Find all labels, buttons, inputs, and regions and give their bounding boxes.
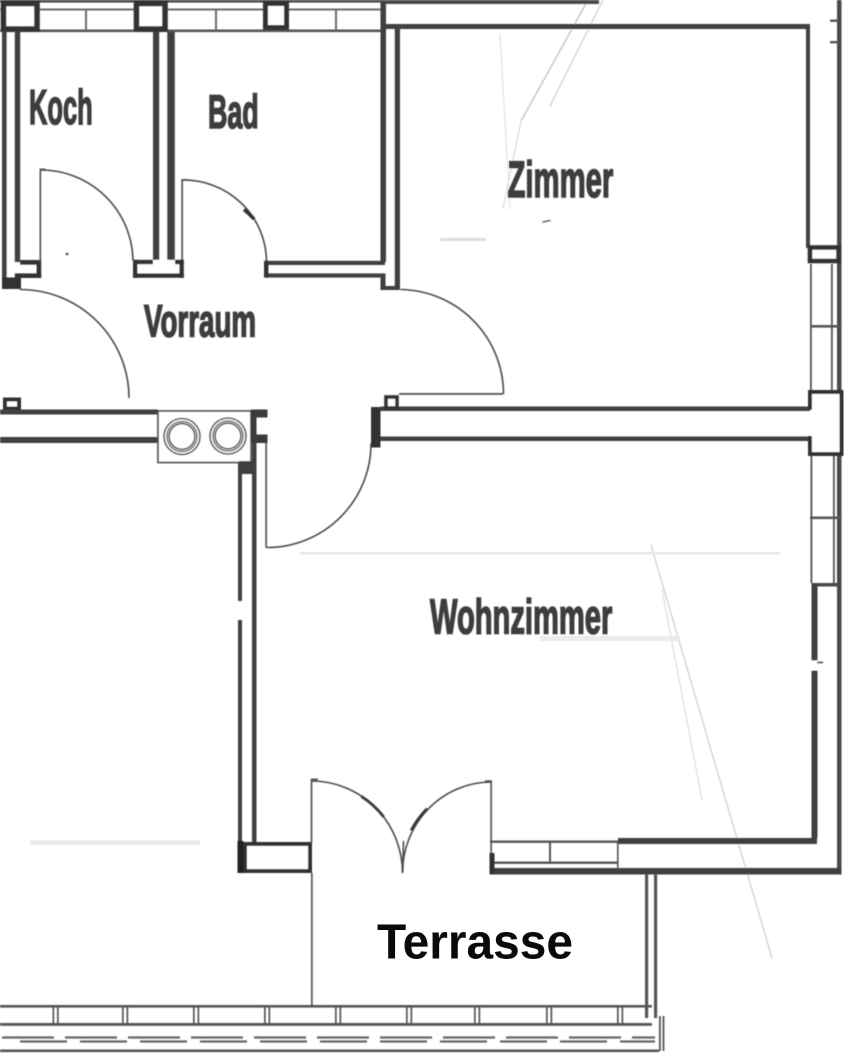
svg-text:Terrasse: Terrasse [377,915,573,970]
svg-text:Wohnzimmer: Wohnzimmer [430,590,613,645]
svg-text:Vorraum: Vorraum [144,296,256,347]
svg-text:Bad: Bad [208,86,259,139]
svg-text:Koch: Koch [29,81,93,135]
svg-text:Zimmer: Zimmer [508,152,614,208]
